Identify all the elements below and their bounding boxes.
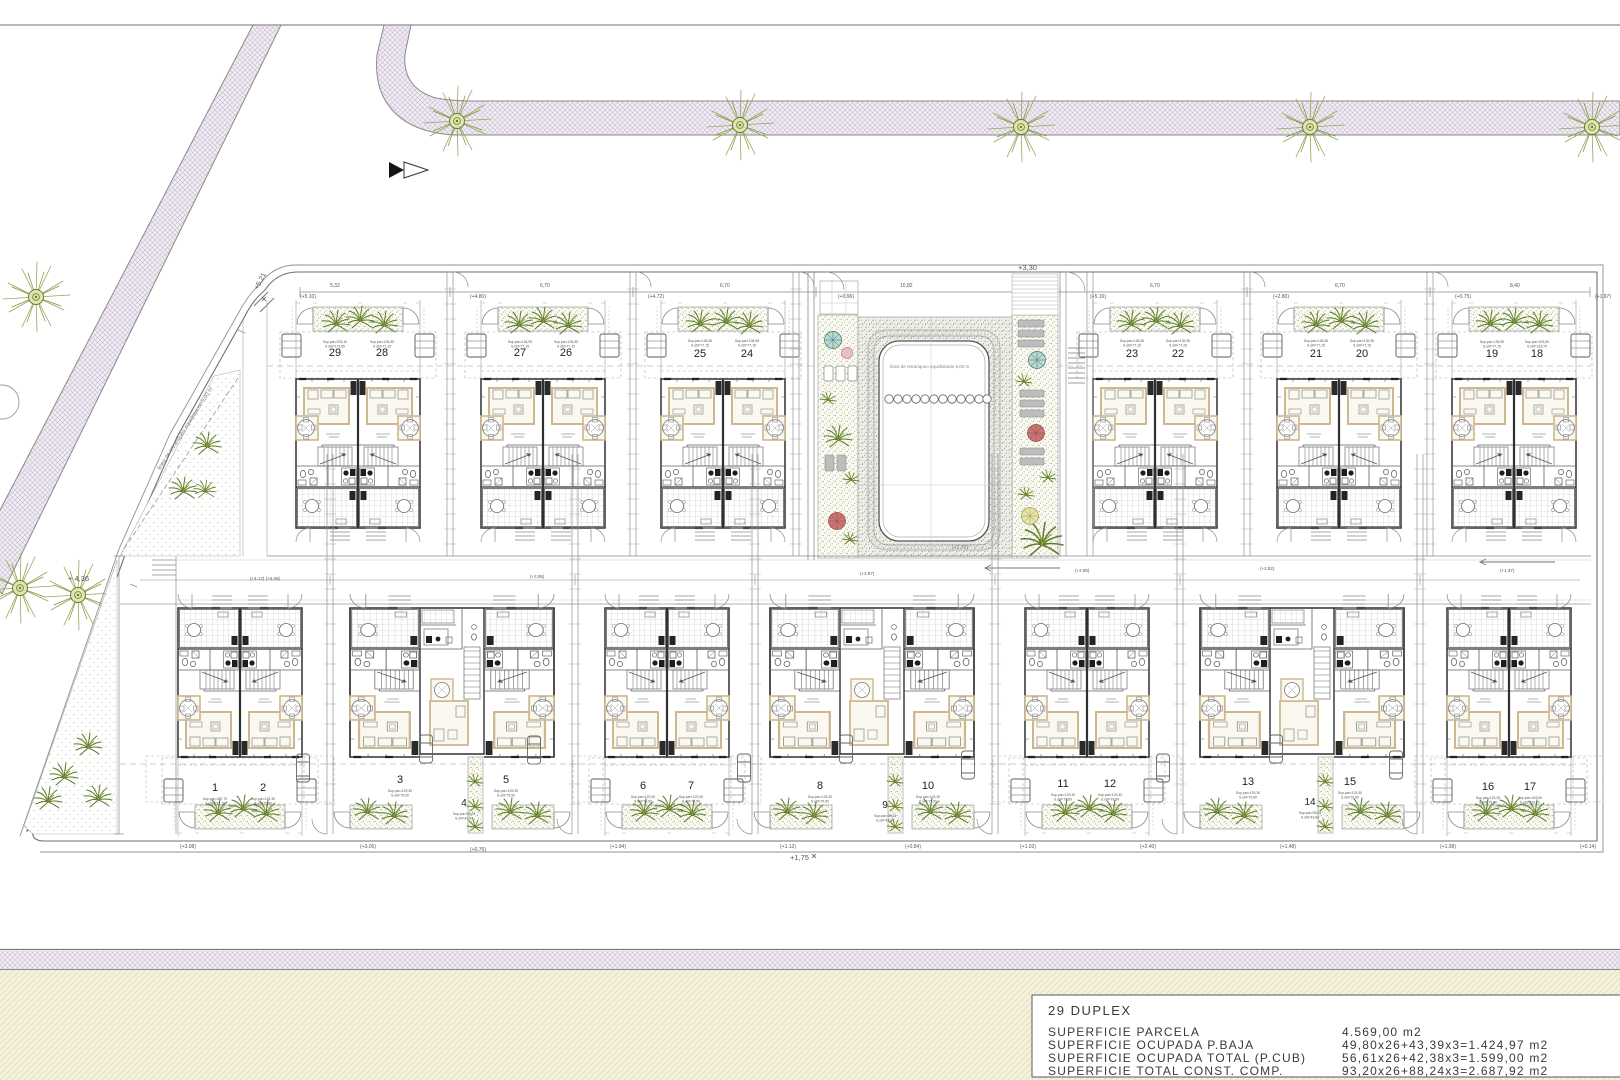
svg-text:(+2.95): (+2.95) — [1075, 568, 1090, 573]
svg-text:4.569,00 m2: 4.569,00 m2 — [1342, 1025, 1422, 1039]
svg-text:6,70: 6,70 — [1335, 283, 1345, 289]
svg-text:6,70: 6,70 — [540, 283, 550, 289]
svg-text:Sup.par=129,30: Sup.par=129,30 — [388, 789, 412, 793]
svg-text:Sup.par=136,95: Sup.par=136,95 — [554, 340, 578, 344]
svg-text:Sup.par=203,50: Sup.par=203,50 — [1518, 796, 1542, 800]
svg-text:SUPERFICIE PARCELA: SUPERFICIE PARCELA — [1048, 1025, 1200, 1039]
svg-text:5,32: 5,32 — [330, 283, 340, 289]
svg-text:26: 26 — [560, 347, 572, 359]
svg-text:(+4.72): (+4.72) — [648, 294, 664, 300]
svg-text:Sup.par=136,95: Sup.par=136,95 — [370, 340, 394, 344]
svg-text:6: 6 — [640, 780, 646, 792]
svg-text:S.útil=77,15: S.útil=77,15 — [1353, 344, 1371, 348]
svg-text:S.útil=79,50: S.útil=79,50 — [1239, 796, 1257, 800]
svg-text:Sup.par=129,30: Sup.par=129,30 — [1236, 791, 1260, 795]
svg-text:Sup.par=207,70: Sup.par=207,70 — [203, 797, 227, 801]
svg-text:6,70: 6,70 — [720, 283, 730, 289]
svg-text:Sup.par=129,30: Sup.par=129,30 — [916, 795, 940, 799]
svg-text:(+3.95): (+3.95) — [530, 574, 545, 579]
svg-text:S.útil=79,50: S.útil=79,50 — [1479, 801, 1497, 805]
svg-text:(+0.14): (+0.14) — [1580, 844, 1596, 850]
svg-text:S.útil=77,15: S.útil=77,15 — [1169, 344, 1187, 348]
svg-text:(+3.08): (+3.08) — [180, 844, 196, 850]
svg-text:(+1.98): (+1.98) — [1440, 844, 1456, 850]
svg-text:9: 9 — [882, 800, 888, 811]
svg-text:+3,30: +3,30 — [1018, 263, 1037, 272]
svg-text:Sup.par=129,30: Sup.par=129,30 — [494, 789, 518, 793]
svg-text:(+0.96): (+0.96) — [838, 294, 854, 300]
svg-text:12: 12 — [1104, 778, 1116, 790]
svg-text:S.útil=77,15: S.útil=77,15 — [691, 344, 709, 348]
svg-text:S.útil=79,50: S.útil=79,50 — [682, 800, 700, 804]
svg-text:S.útil=79,50: S.útil=79,50 — [811, 800, 829, 804]
svg-text:S.útil=79,50: S.útil=79,50 — [1054, 798, 1072, 802]
svg-text:Sup.par=129,30: Sup.par=129,30 — [1476, 796, 1500, 800]
svg-text:Sup.par=136,95: Sup.par=136,95 — [508, 340, 532, 344]
svg-text:10: 10 — [922, 780, 934, 792]
svg-text:20: 20 — [1356, 348, 1368, 360]
svg-text:(+0.84): (+0.84) — [905, 844, 921, 850]
svg-text:25: 25 — [694, 348, 706, 360]
svg-text:2: 2 — [260, 782, 266, 794]
svg-text:93,20x26+88,24x3=2.687,92 m2: 93,20x26+88,24x3=2.687,92 m2 — [1342, 1064, 1548, 1078]
svg-text:(+2.40): (+2.40) — [1140, 844, 1156, 850]
svg-text:(+2.70): (+2.70) — [952, 545, 968, 551]
svg-text:S.útil=79,50: S.útil=79,50 — [497, 794, 515, 798]
svg-text:(+1.48): (+1.48) — [1280, 844, 1296, 850]
svg-text:17: 17 — [1524, 781, 1536, 793]
svg-text:S.útil=77,15: S.útil=77,15 — [373, 345, 391, 349]
svg-text:Sup.par=203,10: Sup.par=203,10 — [323, 340, 347, 344]
svg-text:Sup.par=136,95: Sup.par=136,95 — [1480, 340, 1504, 344]
svg-text:Sup.par=136,95: Sup.par=136,95 — [735, 339, 759, 343]
svg-text:21: 21 — [1310, 348, 1322, 360]
svg-text:(+1.12): (+1.12) — [780, 844, 796, 850]
svg-text:(+0.75): (+0.75) — [1455, 294, 1471, 300]
svg-text:(+0.76): (+0.76) — [470, 847, 486, 853]
svg-text:S.útil=79,50: S.útil=79,50 — [254, 802, 272, 806]
svg-text:22: 22 — [1172, 348, 1184, 360]
svg-text:S.útil=77,15: S.útil=77,15 — [1483, 345, 1501, 349]
svg-text:Sup.par=129,30: Sup.par=129,30 — [1051, 793, 1075, 797]
svg-text:4: 4 — [461, 798, 467, 809]
svg-text:S.útil=173,55: S.útil=173,55 — [325, 345, 345, 349]
svg-text:19: 19 — [1486, 348, 1498, 360]
svg-text:S.útil=77,15: S.útil=77,15 — [738, 344, 756, 348]
svg-text:Sup.par=136,95: Sup.par=136,95 — [1304, 339, 1328, 343]
svg-text:56,61x26+42,38x3=1.599,00 m2: 56,61x26+42,38x3=1.599,00 m2 — [1342, 1051, 1548, 1065]
svg-text:11: 11 — [1057, 778, 1068, 790]
svg-text:S.útil=153,70: S.útil=153,70 — [1527, 345, 1547, 349]
svg-text:(+3.06): (+3.06) — [360, 844, 376, 850]
svg-text:6,70: 6,70 — [1150, 283, 1160, 289]
svg-text:(+2.82): (+2.82) — [1260, 566, 1275, 571]
svg-text:+1,75: +1,75 — [790, 853, 809, 862]
svg-text:Sup.par=129,30: Sup.par=129,30 — [251, 797, 275, 801]
svg-text:S.útil=77,15: S.útil=77,15 — [1307, 344, 1325, 348]
svg-text:(+5.16): (+5.16) — [1090, 294, 1106, 300]
svg-text:S.útil=153,70: S.útil=153,70 — [1520, 801, 1540, 805]
svg-text:S.útil=77,15: S.útil=77,15 — [1123, 344, 1141, 348]
svg-text:S.útil=237,10: S.útil=237,10 — [205, 802, 225, 806]
svg-text:18: 18 — [1531, 348, 1543, 360]
svg-text:13: 13 — [1242, 776, 1254, 788]
svg-text:27: 27 — [514, 347, 526, 359]
svg-text:28: 28 — [376, 347, 388, 359]
svg-text:S.útil=79,50: S.útil=79,50 — [391, 794, 409, 798]
svg-text:5: 5 — [503, 774, 509, 786]
svg-text:8: 8 — [817, 780, 823, 792]
svg-text:7: 7 — [688, 780, 694, 792]
svg-text:23: 23 — [1126, 348, 1138, 360]
svg-text:Sup.par=129,30: Sup.par=129,30 — [808, 795, 832, 799]
svg-text:3: 3 — [397, 774, 403, 786]
svg-text:(+2.80): (+2.80) — [1273, 294, 1289, 300]
svg-text:29: 29 — [329, 347, 341, 359]
svg-text:10,82: 10,82 — [900, 283, 913, 289]
svg-text:Sup.par=129,30: Sup.par=129,30 — [1098, 793, 1122, 797]
svg-text:S.útil=43,84: S.útil=43,84 — [876, 819, 894, 823]
svg-text:Sup.par=203,50: Sup.par=203,50 — [1525, 340, 1549, 344]
svg-text:(+1.97): (+1.97) — [1595, 294, 1611, 300]
svg-text:24: 24 — [741, 348, 753, 360]
svg-text:SUPERFICIE OCUPADA TOTAL (P.CU: SUPERFICIE OCUPADA TOTAL (P.CUB) — [1048, 1051, 1306, 1065]
svg-text:16: 16 — [1482, 781, 1494, 793]
svg-text:S.útil=43,84: S.útil=43,84 — [1301, 816, 1319, 820]
svg-text:Sup.par=129,30: Sup.par=129,30 — [631, 795, 655, 799]
svg-text:14: 14 — [1304, 797, 1316, 808]
svg-text:linea de retranqueo equidistan: linea de retranqueo equidistante 5,00 m — [890, 364, 970, 369]
svg-text:S.útil=79,50: S.útil=79,50 — [919, 800, 937, 804]
svg-text:SUPERFICIE TOTAL CONST. COMP.: SUPERFICIE TOTAL CONST. COMP. — [1048, 1064, 1284, 1078]
svg-text:+ 4,36: + 4,36 — [68, 574, 89, 583]
svg-text:(+1.94): (+1.94) — [610, 844, 626, 850]
svg-text:S.útil=77,15: S.útil=77,15 — [511, 345, 529, 349]
svg-text:S.útil=79,50: S.útil=79,50 — [1341, 796, 1359, 800]
svg-text:(+1.02): (+1.02) — [1020, 844, 1036, 850]
svg-text:Sup.par=136,95: Sup.par=136,95 — [1120, 339, 1144, 343]
svg-text:Sup.par=136,95: Sup.par=136,95 — [688, 339, 712, 343]
svg-text:(+4.12) (+4.08): (+4.12) (+4.08) — [250, 576, 281, 581]
svg-text:Sup.par=136,95: Sup.par=136,95 — [1350, 339, 1374, 343]
svg-text:(+5.10): (+5.10) — [300, 294, 316, 300]
svg-text:Sup.par=129,30: Sup.par=129,30 — [1338, 791, 1362, 795]
svg-text:S.útil=79,50: S.útil=79,50 — [1101, 798, 1119, 802]
svg-text:SUPERFICIE OCUPADA P.BAJA: SUPERFICIE OCUPADA P.BAJA — [1048, 1038, 1254, 1052]
svg-text:8,40: 8,40 — [1510, 283, 1520, 289]
svg-text:15: 15 — [1344, 776, 1356, 788]
svg-text:S.útil=43,84: S.útil=43,84 — [455, 817, 473, 821]
svg-text:(+4.80): (+4.80) — [470, 294, 486, 300]
svg-text:Sup.par=98,03: Sup.par=98,03 — [874, 814, 896, 818]
svg-text:S.útil=79,50: S.útil=79,50 — [634, 800, 652, 804]
svg-text:1: 1 — [212, 782, 218, 794]
svg-text:S.útil=77,15: S.útil=77,15 — [557, 345, 575, 349]
svg-text:29 DUPLEX: 29 DUPLEX — [1048, 1003, 1132, 1018]
svg-text:49,80x26+43,39x3=1.424,97 m2: 49,80x26+43,39x3=1.424,97 m2 — [1342, 1038, 1548, 1052]
svg-text:(+2.87): (+2.87) — [860, 571, 875, 576]
svg-text:Sup.par=98,03: Sup.par=98,03 — [1299, 811, 1321, 815]
svg-text:Sup.par=98,03: Sup.par=98,03 — [453, 812, 475, 816]
svg-text:Sup.par=129,30: Sup.par=129,30 — [679, 795, 703, 799]
svg-text:(+1.37): (+1.37) — [1500, 568, 1515, 573]
svg-text:Sup.par=136,95: Sup.par=136,95 — [1166, 339, 1190, 343]
